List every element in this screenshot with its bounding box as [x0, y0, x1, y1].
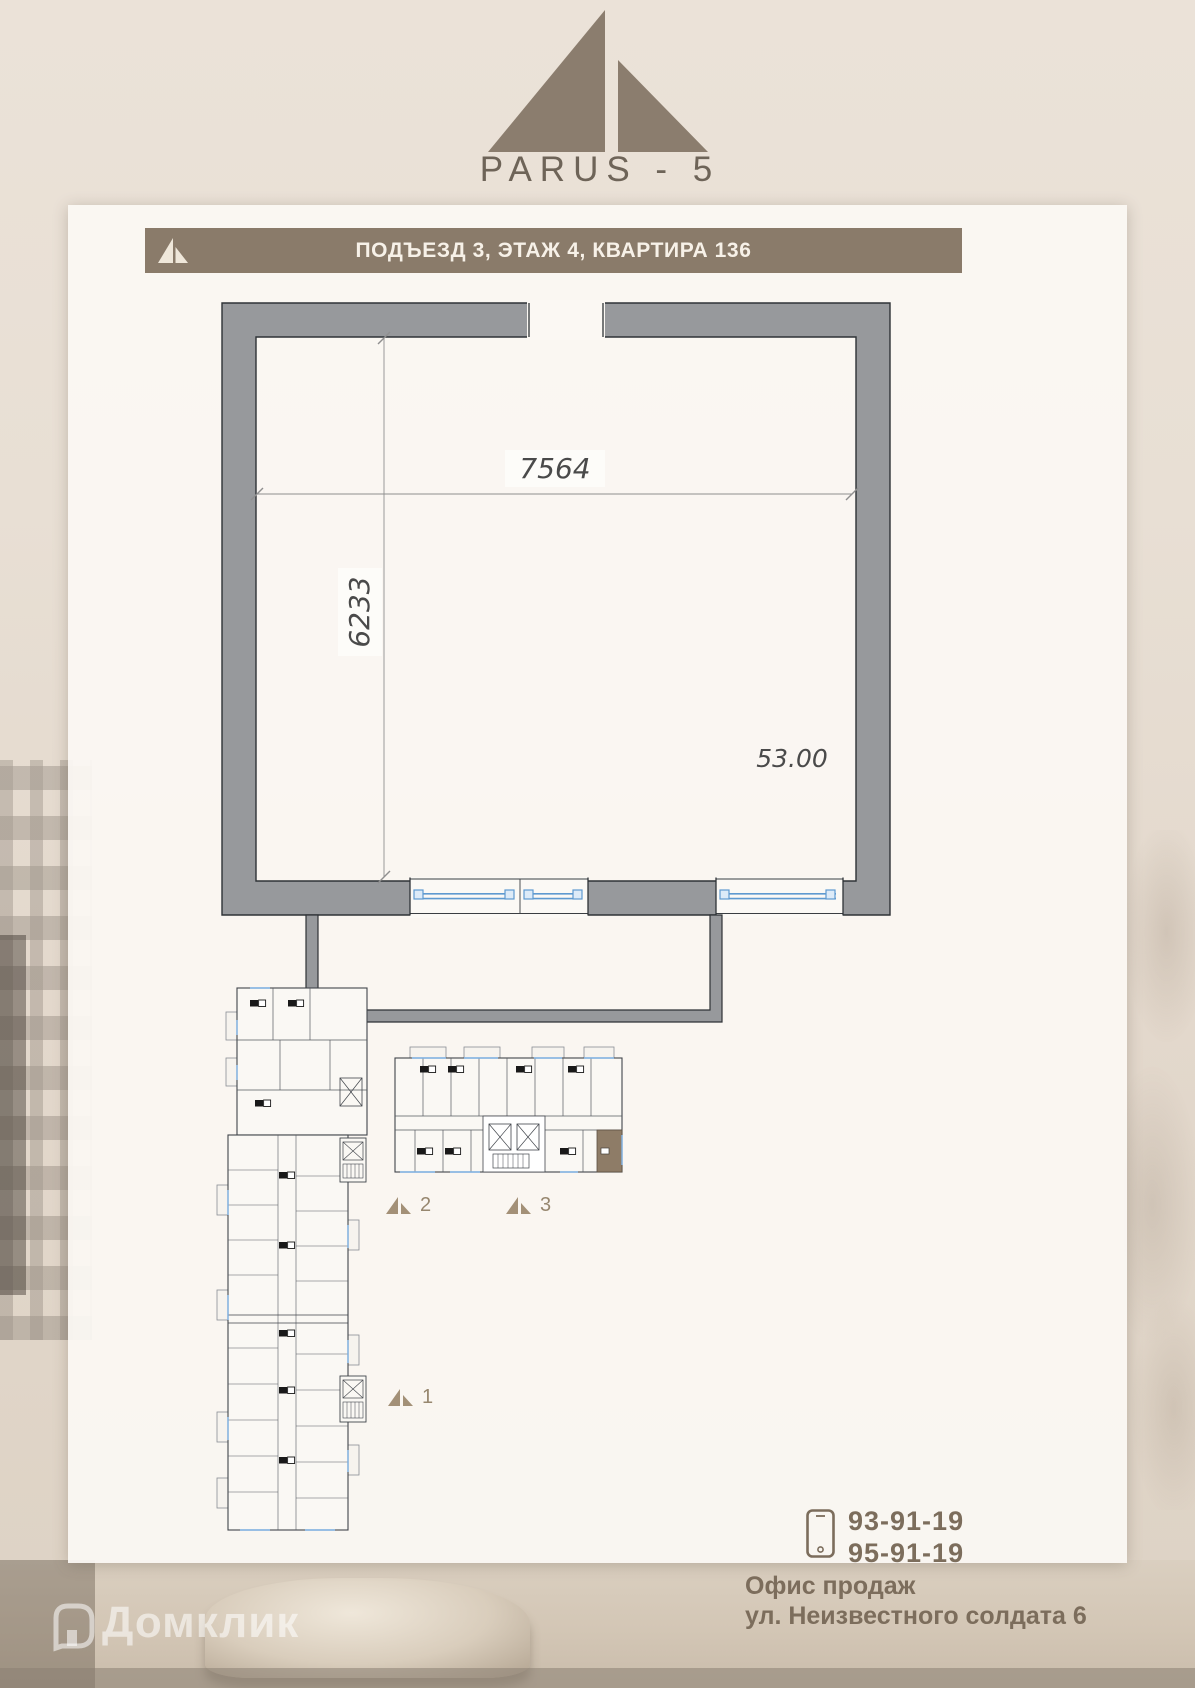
domclick-logo-icon — [42, 1596, 98, 1654]
area-label: 53.00 — [732, 744, 852, 773]
parus-logo-sail-icon — [450, 8, 750, 158]
sales-office-label: Офис продаж — [745, 1572, 915, 1601]
header-bar: ПОДЪЕЗД 3, ЭТАЖ 4, КВАРТИРА 136 — [145, 228, 962, 273]
flyer-sheet — [68, 205, 1127, 1563]
background-road-band — [0, 1668, 1195, 1688]
phone-number-1: 93-91-19 — [848, 1506, 964, 1537]
apartment-location-title: ПОДЪЕЗД 3, ЭТАЖ 4, КВАРТИРА 136 — [355, 239, 751, 263]
domclick-watermark: Домклик — [102, 1598, 299, 1648]
entrance-marker-3-label: 3 — [540, 1194, 551, 1217]
background-building-shadow — [0, 935, 26, 1295]
sales-office-address: ул. Неизвестного солдата 6 — [745, 1602, 1087, 1631]
phone-number-2: 95-91-19 — [848, 1538, 964, 1569]
background-trees — [1124, 830, 1195, 1510]
entrance-marker-2-label: 2 — [420, 1194, 431, 1217]
entrance-marker-1-label: 1 — [422, 1386, 433, 1409]
phone-icon — [804, 1508, 838, 1560]
sail-icon — [155, 235, 191, 266]
dimension-depth-label: 6233 — [338, 568, 382, 656]
dimension-width-label: 7564 — [505, 450, 605, 487]
brand-title: PARUS - 5 — [400, 150, 800, 190]
flyer-page: { "logo": { "title": "PARUS - 5" }, "hea… — [0, 0, 1195, 1688]
